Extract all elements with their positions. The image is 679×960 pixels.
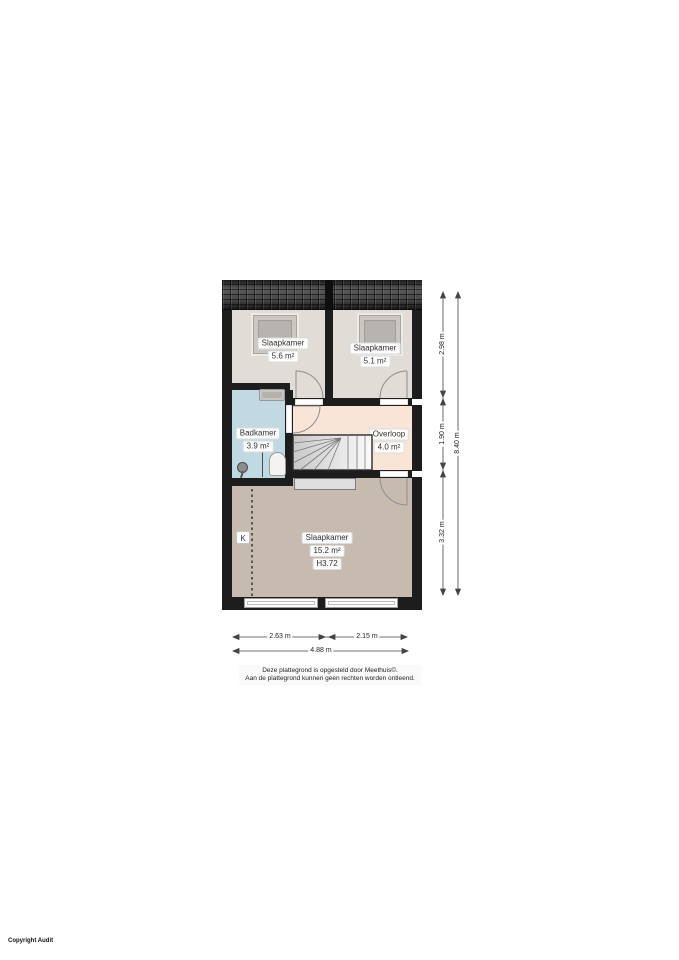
room-area: 15.2 m² xyxy=(309,545,344,557)
room-area: 3.9 m² xyxy=(243,441,274,453)
room-name: Slaapkamer xyxy=(258,338,309,350)
stair-headroom xyxy=(294,478,356,490)
room-area: 5.1 m² xyxy=(360,356,391,368)
window-icon xyxy=(325,598,398,608)
room-label-bathroom: Badkamer 3.9 m² xyxy=(236,428,280,453)
door-threshold-bedroom-left xyxy=(295,399,323,405)
wall-landing-bottom xyxy=(285,470,380,478)
sink-icon xyxy=(259,389,285,401)
bathroom-partition-line xyxy=(262,450,263,477)
wall-bathroom-bottom xyxy=(222,478,293,486)
wall-bathroom-right xyxy=(285,390,293,405)
wall-window-mullion xyxy=(318,597,325,610)
room-name: Slaapkamer xyxy=(350,343,401,355)
room-label-landing: Overloop 4.0 m² xyxy=(369,429,409,454)
disclaimer-text: Deze plattegrond is opgesteld door Meeth… xyxy=(239,665,421,685)
dimension-label: 1.90 m xyxy=(439,421,447,446)
dimension-label: 4.88 m xyxy=(308,647,333,655)
room-area: 5.6 m² xyxy=(268,351,299,363)
sink-basin xyxy=(262,392,282,398)
toilet-icon xyxy=(269,452,286,476)
window-pane xyxy=(328,601,395,605)
room-name: Overloop xyxy=(369,429,409,441)
window-icon xyxy=(244,598,318,608)
door-threshold-bedroom-main xyxy=(380,471,408,477)
disclaimer-line1: Deze plattegrond is opgesteld door Meeth… xyxy=(245,667,415,675)
dimension-label: 3.32 m xyxy=(439,519,447,544)
door-threshold-bathroom xyxy=(286,405,292,433)
room-label-bedroom-right: Slaapkamer 5.1 m² xyxy=(350,343,401,368)
room-area: 4.0 m² xyxy=(374,442,405,454)
room-name: Slaapkamer xyxy=(302,532,353,544)
copyright-text: Copyright Audit xyxy=(8,938,53,944)
room-label-bedroom-left: Slaapkamer 5.6 m² xyxy=(258,338,309,363)
wall-junction-mark xyxy=(412,399,422,405)
dimension-label: 2.15 m xyxy=(354,633,379,641)
floorplan: Slaapkamer 5.6 m² Slaapkamer 5.1 m² Badk… xyxy=(0,0,679,960)
knee-wall-marker: K xyxy=(236,531,250,544)
wall-junction-mark xyxy=(412,471,422,477)
room-label-bedroom-main: Slaapkamer 15.2 m² H3.72 xyxy=(302,532,353,570)
dimension-label: 2.63 m xyxy=(267,633,292,641)
wall-bedroom-divider xyxy=(325,310,333,398)
window-pane xyxy=(247,601,315,605)
dimension-label: 2.98 m xyxy=(439,331,447,356)
wall-mid xyxy=(323,398,380,406)
door-threshold-bedroom-right xyxy=(380,399,408,405)
dimension-label: 8.40 m xyxy=(454,430,462,455)
roof-party-wall xyxy=(325,280,333,310)
disclaimer-line2: Aan de plattegrond kunnen geen rechten w… xyxy=(245,675,415,683)
roof-hatch xyxy=(222,280,422,310)
room-ceiling-height: H3.72 xyxy=(312,558,341,570)
room-name: Badkamer xyxy=(236,428,280,440)
